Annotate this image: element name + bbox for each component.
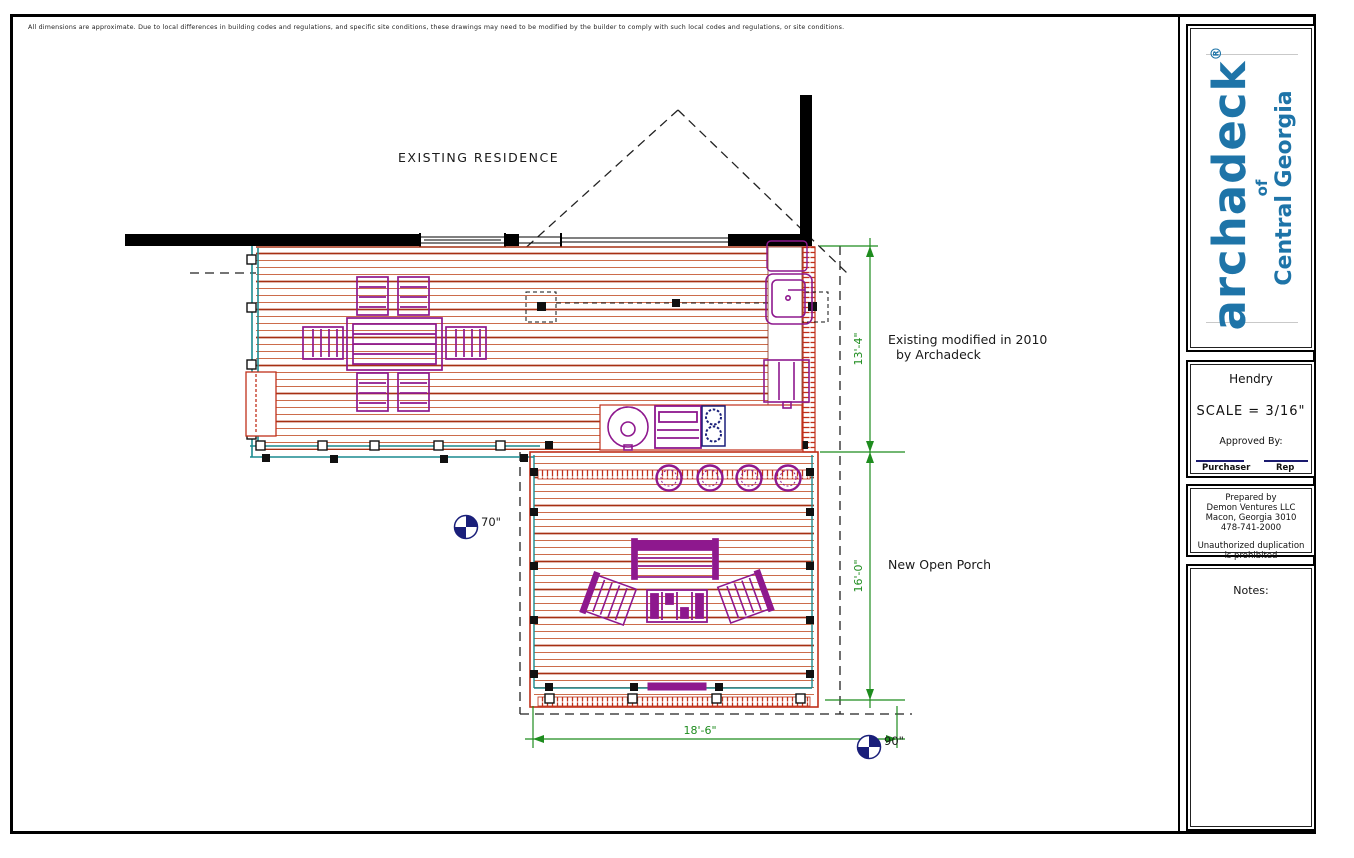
window: [420, 233, 505, 247]
door-sill: [561, 238, 728, 242]
company-phone: 478-741-2000: [1188, 523, 1314, 533]
height-marker-right-label: 90": [884, 734, 904, 748]
coffee-table: [647, 590, 707, 622]
bench: [246, 372, 276, 436]
new-open-porch-label: New Open Porch: [888, 557, 991, 572]
rep-label: Rep: [1276, 463, 1294, 473]
existing-residence-walls: [125, 95, 812, 247]
title-block-divider: [1178, 14, 1180, 834]
porch-step-top: [538, 470, 810, 479]
company-address: Macon, Georgia 3010: [1188, 513, 1314, 523]
plan-canvas: 13'-4" 16'-0" 18'-6" 70" 90" EXISTING RE…: [0, 0, 1354, 858]
project-box: Hendry SCALE = 3/16" Approved By: Purcha…: [1186, 360, 1316, 478]
existing-modified-label-line1: Existing modified in 2010: [888, 332, 1047, 347]
dim-porch-width: 18'-6": [683, 724, 716, 737]
logo-region: Central Georgia: [1273, 90, 1296, 285]
dim-porch-depth: 16'-0": [852, 559, 865, 592]
notes-box: Notes:: [1186, 564, 1316, 831]
existing-modified-label-line2: by Archadeck: [896, 347, 982, 362]
copyright-line2: is prohibited: [1188, 551, 1314, 561]
approved-by-label: Approved By:: [1188, 436, 1314, 447]
prepared-by-box: Prepared by Demon Ventures LLC Macon, Ge…: [1186, 484, 1316, 557]
purchaser-signature-line: [1196, 460, 1244, 462]
notes-heading: Notes:: [1188, 584, 1314, 597]
height-marker-left-label: 70": [481, 515, 501, 529]
dim-existing-deck-depth: 13'-4": [852, 332, 865, 365]
registered-mark: ®: [1209, 46, 1225, 61]
porch-step-bottom: [538, 697, 810, 706]
existing-residence-label: EXISTING RESIDENCE: [398, 150, 559, 165]
purchaser-label: Purchaser: [1202, 463, 1250, 473]
porch-shelf: [648, 683, 706, 690]
rep-signature-line: [1264, 460, 1308, 462]
logo-box: archadeck® of Central Georgia: [1186, 24, 1316, 352]
archadeck-logo: archadeck® of Central Georgia: [1189, 28, 1313, 348]
prepared-by-line: Prepared by: [1188, 493, 1314, 503]
copyright-line1: Unauthorized duplication: [1188, 541, 1314, 551]
height-marker-right-icon: [858, 736, 881, 759]
height-marker-left-icon: [455, 516, 478, 539]
scale-note: SCALE = 3/16": [1188, 404, 1314, 419]
logo-brand: archadeck®: [1206, 46, 1253, 331]
drawing-sheet: All dimensions are approximate. Due to l…: [0, 0, 1354, 858]
logo-of: of: [1255, 180, 1271, 197]
company-name: Demon Ventures LLC: [1188, 503, 1314, 513]
client-name: Hendry: [1188, 372, 1314, 386]
